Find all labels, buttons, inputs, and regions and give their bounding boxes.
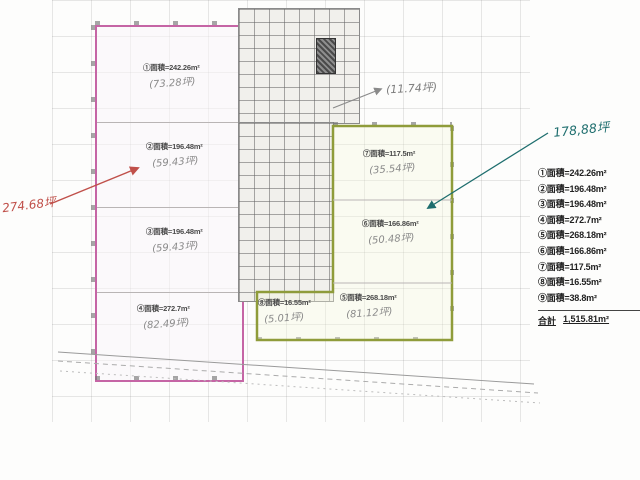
unit-tsubo-note: (50.48坪) [368,228,420,246]
legend-item-3: ③面積=196.48m² [538,197,640,213]
teal-total-annotation: 178,88坪 [552,116,610,141]
partition-line [97,292,242,293]
column-ticks [333,122,452,126]
pencil-tsubo-annotation: (11.74坪) [386,79,438,98]
unit-label-8: ⑧面積=16.55m² (5.01坪) [258,297,311,324]
column-ticks [95,376,240,380]
legend-item-7: ⑦面積=117.5m² [538,260,640,276]
unit-tsubo-note: (81.12坪) [346,302,398,320]
legend-item-4: ④面積=272.7m² [538,213,640,229]
service-core-upper [238,8,360,124]
column-ticks [450,126,454,340]
legend-total-label: 合計 [538,314,556,327]
legend-item-1: ①面積=242.26m² [538,166,640,182]
service-core-lower [238,122,334,302]
unit-area-text: ②面積=196.48m² [146,141,203,152]
partition-line [97,207,242,208]
unit-label-7: ⑦面積=117.5m² (35.54坪) [363,148,415,175]
unit-tsubo-note: (59.43坪) [152,236,204,254]
unit-area-text: ①面積=242.26m² [143,62,200,73]
unit-tsubo-note: (59.43坪) [152,151,204,169]
floor-plan-scan: ①面積=242.26m² (73.28坪) ②面積=196.48m² (59.4… [0,0,640,480]
unit-area-text: ⑧面積=16.55m² [258,297,311,308]
unit-label-2: ②面積=196.48m² (59.43坪) [146,141,203,168]
unit-label-3: ③面積=196.48m² (59.43坪) [146,226,203,253]
area-legend: ①面積=242.26m² ②面積=196.48m² ③面積=196.48m² ④… [538,166,640,327]
unit-tsubo-note: (73.28坪) [149,72,201,90]
unit-tsubo-note: (82.49坪) [143,313,191,331]
unit-label-5: ⑤面積=268.18m² (81.12坪) [340,292,397,319]
column-ticks [91,25,95,378]
column-ticks [95,21,240,25]
partition-line [97,122,242,123]
legend-item-8: ⑧面積=16.55m² [538,275,640,291]
unit-tsubo-note: (35.54坪) [369,158,416,176]
legend-total-value: 1,515.81m² [563,314,609,327]
unit-area-text: ⑤面積=268.18m² [340,292,397,303]
unit-label-4: ④面積=272.7m² (82.49坪) [137,303,190,330]
unit-label-6: ⑥面積=166.86m² (50.48坪) [362,218,419,245]
unit-label-1: ①面積=242.26m² (73.28坪) [143,62,200,89]
legend-item-9: ⑨面積=38.8m² [538,291,640,307]
unit-area-text: ⑦面積=117.5m² [363,148,415,159]
column-ticks [257,337,452,341]
unit-area-text: ⑥面積=166.86m² [362,218,419,229]
legend-item-5: ⑤面積=268.18m² [538,228,640,244]
unit-tsubo-note: (5.01坪) [264,307,312,325]
unit-area-text: ④面積=272.7m² [137,303,190,314]
legend-item-2: ②面積=196.48m² [538,182,640,198]
legend-item-6: ⑥面積=166.86m² [538,244,640,260]
red-total-annotation: 274.68坪 [1,193,57,216]
legend-total-row: 合計 1,515.81m² [538,310,640,327]
unit-area-text: ③面積=196.48m² [146,226,203,237]
elevator-shaft-hatch [316,38,336,74]
